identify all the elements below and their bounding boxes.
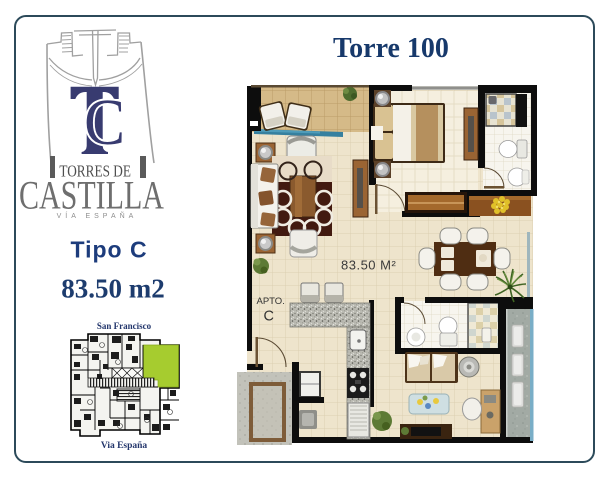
svg-text:83.50 M²: 83.50 M² xyxy=(341,258,396,273)
svg-text:C: C xyxy=(264,309,274,325)
svg-text:APTO.: APTO. xyxy=(257,296,285,307)
